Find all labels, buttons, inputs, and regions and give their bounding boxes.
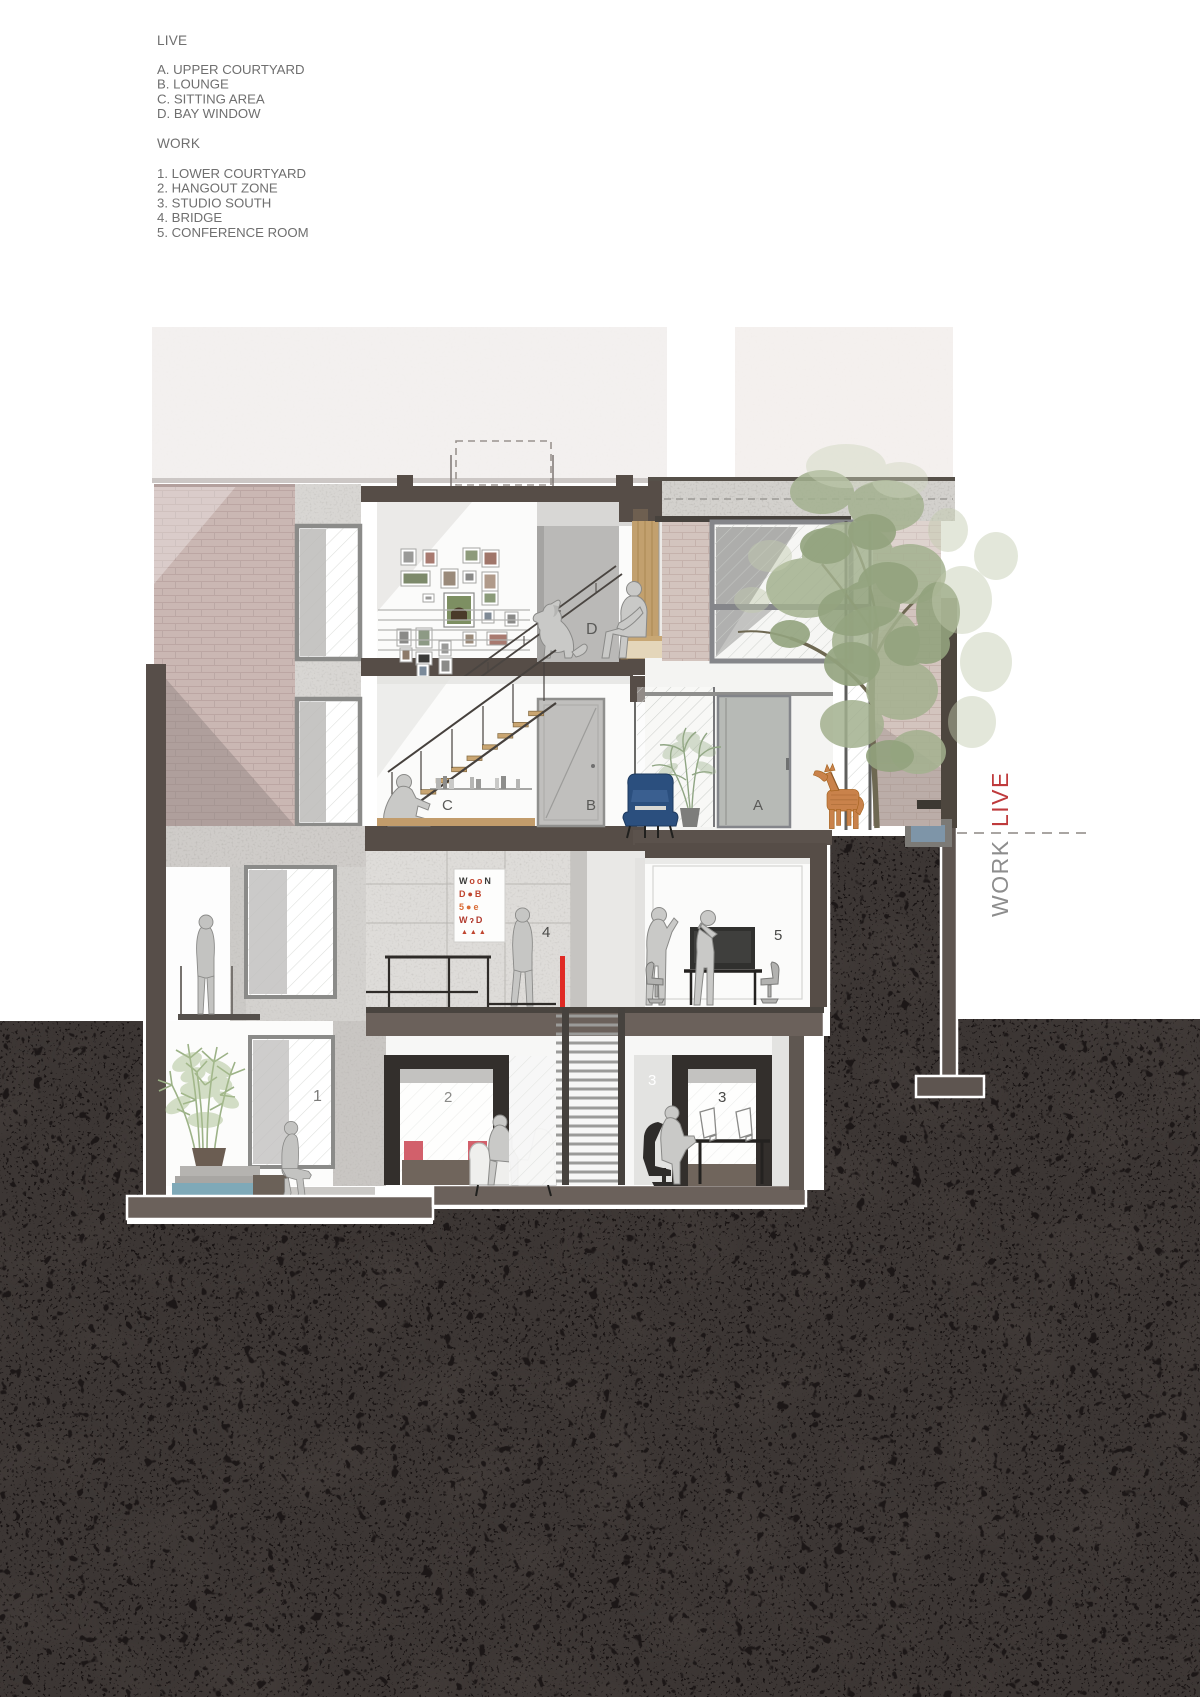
svg-text:D: D [586, 621, 598, 638]
svg-text:WɂD: WɂD [459, 915, 484, 925]
svg-text:B. LOUNGE: B. LOUNGE [157, 77, 229, 92]
svg-text:3: 3 [648, 1072, 656, 1089]
svg-text:3. STUDIO SOUTH: 3. STUDIO SOUTH [157, 195, 271, 210]
svg-text:2: 2 [444, 1089, 452, 1106]
svg-text:D●B: D●B [459, 889, 483, 899]
svg-text:3: 3 [718, 1089, 726, 1106]
svg-text:4: 4 [542, 924, 550, 941]
svg-text:1. LOWER COURTYARD: 1. LOWER COURTYARD [157, 166, 306, 181]
svg-text:2. HANGOUT ZONE: 2. HANGOUT ZONE [157, 181, 278, 196]
svg-text:B: B [586, 797, 596, 814]
svg-text:WORK: WORK [987, 839, 1013, 917]
svg-text:A. UPPER COURTYARD: A. UPPER COURTYARD [157, 62, 305, 77]
svg-text:4. BRIDGE: 4. BRIDGE [157, 210, 222, 225]
svg-text:1: 1 [313, 1088, 322, 1105]
svg-text:D. BAY WINDOW: D. BAY WINDOW [157, 106, 261, 121]
svg-text:C. SITTING AREA: C. SITTING AREA [157, 91, 265, 106]
svg-text:WooN: WooN [459, 876, 493, 886]
svg-text:A: A [753, 797, 763, 814]
svg-text:LIVE: LIVE [157, 33, 187, 48]
svg-text:LIVE: LIVE [987, 771, 1013, 827]
svg-text:▲▲▲: ▲▲▲ [461, 929, 488, 936]
svg-text:WORK: WORK [157, 136, 200, 151]
svg-text:C: C [442, 797, 453, 814]
svg-text:5. CONFERENCE ROOM: 5. CONFERENCE ROOM [157, 225, 309, 240]
svg-text:5●e: 5●e [459, 902, 480, 912]
svg-text:5: 5 [774, 927, 782, 944]
